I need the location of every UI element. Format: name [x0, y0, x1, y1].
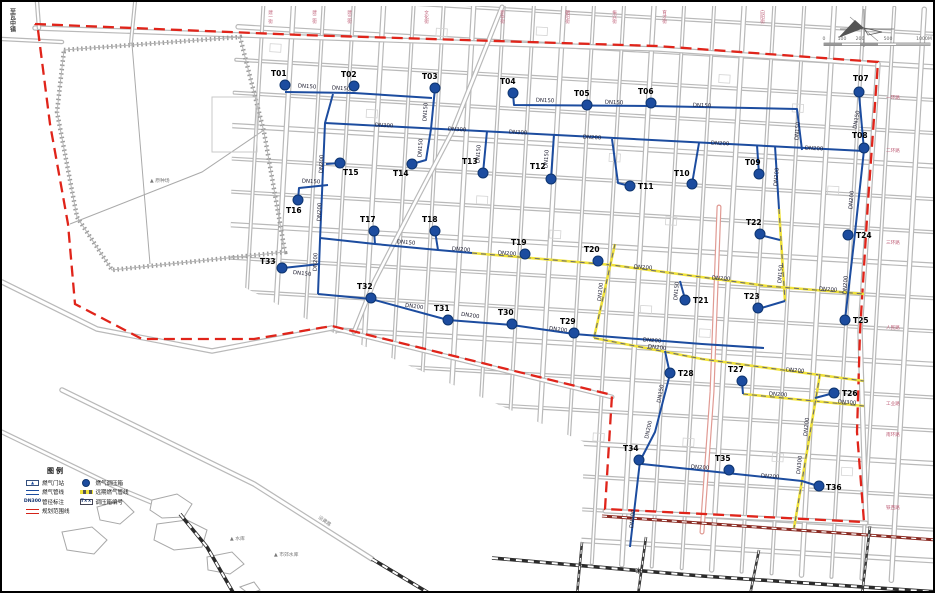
marker-label-T14: T14 — [393, 169, 409, 178]
street-label: 二环路 — [886, 147, 900, 154]
marker-T22 — [755, 229, 765, 239]
marker-label-T15: T15 — [343, 168, 359, 177]
marker-label-T27: T27 — [728, 365, 744, 374]
scale-label: 0 — [823, 36, 826, 42]
dn-label: DN300 — [375, 123, 394, 130]
dn-label: DN200 — [648, 344, 668, 352]
legend-swatch-future-icon — [80, 490, 93, 494]
place-label: ▲ 市郊水库 — [274, 551, 299, 558]
street-label: 建二街 — [312, 9, 317, 25]
dn-label: DN200 — [629, 509, 637, 529]
legend-item: 燃气调压箱 — [80, 479, 129, 486]
marker-label-T34: T34 — [623, 444, 639, 453]
marker-label-T10: T10 — [674, 169, 690, 178]
marker-T06 — [646, 98, 656, 108]
legend-swatch-pipe-icon — [26, 490, 39, 495]
street-label: 南环路 — [886, 431, 900, 438]
marker-label-T03: T03 — [422, 72, 438, 81]
marker-label-T30: T30 — [498, 308, 514, 317]
dn-label: DN150 — [417, 138, 424, 157]
marker-label-T18: T18 — [422, 215, 438, 224]
legend-swatch-bound-icon — [26, 509, 39, 514]
marker-T19 — [520, 249, 530, 259]
street-label: 新华街 — [500, 9, 505, 25]
marker-label-T13: T13 — [462, 157, 478, 166]
dn-label: DN150 — [298, 83, 317, 90]
marker-T20 — [593, 256, 603, 266]
marker-T18 — [430, 226, 440, 236]
marker-label-T17: T17 — [360, 215, 376, 224]
legend-label: 管径标注 — [42, 498, 64, 506]
corner-destination-label: 至瓦中镇 — [9, 7, 16, 33]
marker-label-T05: T05 — [574, 89, 590, 98]
dn-label: DN200 — [583, 135, 602, 142]
marker-label-T22: T22 — [746, 218, 762, 227]
street-label: 建一街 — [268, 9, 273, 25]
marker-T05 — [582, 100, 592, 110]
marker-label-T01: T01 — [271, 69, 287, 78]
street-label: 铁西路 — [886, 504, 900, 511]
street-label: 育才街 — [662, 9, 667, 25]
marker-T33 — [277, 263, 287, 273]
legend-item: 燃气管线 — [26, 489, 70, 496]
marker-T29 — [569, 328, 579, 338]
dn-label: DN150 — [605, 100, 624, 107]
legend-box: 图例 ▲燃气门站燃气管线DN300管径标注规划范围线 燃气调压箱远期燃气管线T×… — [26, 466, 176, 515]
marker-T03 — [430, 83, 440, 93]
legend-label: 规划范围线 — [42, 507, 70, 515]
dn-label: DN150 — [673, 281, 681, 300]
marker-T36 — [814, 481, 824, 491]
marker-T15 — [335, 158, 345, 168]
street-label: 人民路 — [886, 324, 900, 331]
legend-item: T××调压箱编号 — [80, 498, 129, 505]
dn-label: DN150 — [422, 102, 429, 121]
place-label: ▲ 原种场 — [150, 177, 170, 184]
marker-label-T09: T09 — [745, 158, 761, 167]
legend-label: 燃气调压箱 — [96, 479, 124, 487]
dn-label: DN200 — [317, 202, 324, 221]
map-frame: DN150DN150DN150DN150DN300DN300DN300DN200… — [0, 0, 935, 593]
dn-label: DN150 — [693, 103, 712, 110]
marker-label-T35: T35 — [715, 454, 731, 463]
dn-label: DN150 — [293, 270, 313, 278]
street-label: 振兴街 — [612, 9, 617, 25]
dn-label: DN200 — [461, 312, 481, 321]
legend-label: 燃气门站 — [42, 479, 64, 487]
marker-T09 — [754, 169, 764, 179]
marker-label-T31: T31 — [434, 304, 450, 313]
marker-T26 — [829, 388, 839, 398]
marker-T35 — [724, 465, 734, 475]
dn-label: DN200 — [773, 167, 781, 186]
marker-label-T07: T07 — [853, 74, 869, 83]
street-label: 三环路 — [886, 239, 900, 246]
legend-swatch-station-icon: ▲ — [26, 480, 39, 486]
marker-label-T36: T36 — [826, 483, 842, 492]
marker-T02 — [349, 81, 359, 91]
dn-label: DN200 — [761, 473, 780, 480]
scale-label: 1000M — [916, 36, 932, 42]
marker-label-T20: T20 — [584, 245, 600, 254]
street-label: 向阳街 — [760, 9, 765, 25]
marker-T14 — [407, 159, 417, 169]
marker-T10 — [687, 179, 697, 189]
legend-title: 图例 — [26, 466, 86, 476]
dn-label: DN200 — [805, 146, 824, 153]
legend-item: 远期燃气管线 — [80, 489, 129, 496]
marker-T21 — [680, 295, 690, 305]
marker-label-T12: T12 — [530, 162, 546, 171]
dn-label: DN200 — [786, 367, 805, 375]
marker-T11 — [625, 181, 635, 191]
marker-label-T32: T32 — [357, 282, 373, 291]
legend-label: 燃气管线 — [42, 488, 64, 496]
scale-bar: 01002005001000M — [823, 36, 932, 46]
marker-T07 — [854, 87, 864, 97]
legend-label: 远期燃气管线 — [96, 488, 129, 496]
marker-label-T02: T02 — [341, 70, 357, 79]
marker-T13 — [478, 168, 488, 178]
marker-T16 — [293, 195, 303, 205]
marker-T23 — [753, 303, 763, 313]
dn-label: DN150 — [302, 179, 321, 186]
marker-T32 — [366, 293, 376, 303]
marker-label-T08: T08 — [852, 131, 868, 140]
marker-T30 — [507, 319, 517, 329]
marker-T27 — [737, 376, 747, 386]
dn-label: DN150 — [536, 98, 555, 105]
scale-label: 500 — [884, 36, 893, 42]
scale-label: 100 — [838, 36, 847, 42]
dn-label: DN300 — [509, 130, 528, 137]
place-label: ✳ — [635, 567, 643, 577]
legend-swatch-tnum-icon: T×× — [80, 499, 93, 505]
dn-label: DN200 — [452, 246, 471, 254]
marker-label-T29: T29 — [560, 317, 576, 326]
marker-label-T33: T33 — [260, 257, 276, 266]
marker-T34 — [634, 455, 644, 465]
place-label: ▲ 水库 — [230, 535, 245, 542]
marker-T17 — [369, 226, 379, 236]
marker-T28 — [665, 368, 675, 378]
marker-T31 — [443, 315, 453, 325]
legend-label: 调压箱编号 — [96, 498, 124, 506]
marker-T24 — [843, 230, 853, 240]
legend-swatch-dot-icon — [80, 479, 93, 486]
dn-label: DN200 — [319, 154, 326, 173]
dn-label: DN300 — [448, 127, 467, 134]
marker-label-T28: T28 — [678, 369, 694, 378]
marker-label-T16: T16 — [286, 206, 302, 215]
dn-label: DN200 — [691, 464, 710, 471]
marker-label-T25: T25 — [853, 316, 869, 325]
dn-label: DN200 — [549, 326, 569, 334]
marker-label-T24: T24 — [856, 231, 872, 240]
legend-item: DN300管径标注 — [26, 498, 70, 505]
street-name-labels: 建一街建二街建三街文化街新华街朝阳街振兴街育才街向阳街一环路二环路三环路人民路工… — [9, 7, 901, 511]
marker-T04 — [508, 88, 518, 98]
legend-item: 规划范围线 — [26, 508, 70, 515]
dn-label: DN200 — [313, 252, 320, 271]
scale-label: 200 — [856, 36, 865, 42]
marker-label-T04: T04 — [500, 77, 516, 86]
marker-T01 — [280, 80, 290, 90]
street-label: 一环路 — [886, 94, 900, 101]
marker-label-T21: T21 — [693, 296, 709, 305]
marker-label-T23: T23 — [744, 292, 760, 301]
marker-label-T26: T26 — [842, 389, 858, 398]
legend-swatch-dn-icon: DN300 — [26, 499, 39, 505]
dn-label: DN150 — [332, 85, 351, 92]
street-label: 建三街 — [347, 9, 352, 25]
dn-label: DN200 — [711, 141, 730, 148]
street-label: 文化街 — [424, 9, 429, 25]
marker-label-T19: T19 — [511, 238, 527, 247]
street-label: 朝阳街 — [565, 10, 570, 25]
marker-label-T06: T06 — [638, 87, 654, 96]
marker-T08 — [859, 143, 869, 153]
legend-item: ▲燃气门站 — [26, 479, 70, 486]
marker-T12 — [546, 174, 556, 184]
marker-label-T11: T11 — [638, 182, 654, 191]
marker-T25 — [840, 315, 850, 325]
street-label: 工业路 — [886, 400, 900, 407]
